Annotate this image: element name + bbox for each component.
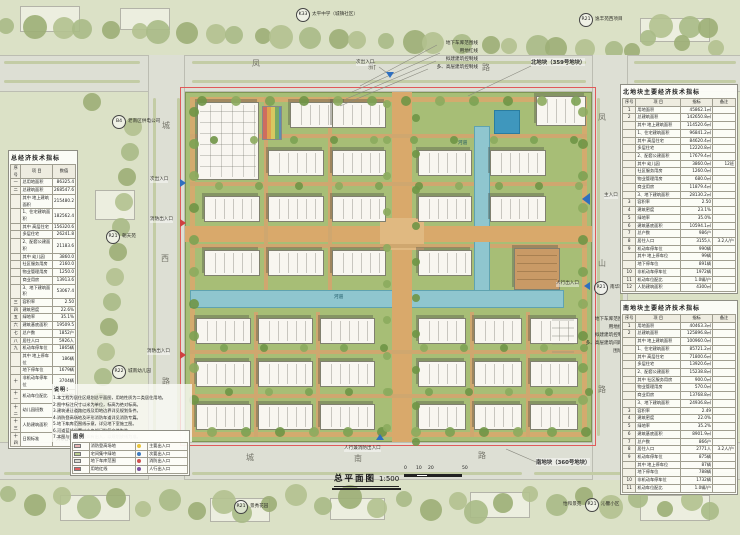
table-cell [713,168,736,176]
table-row: 6建筑基底面积10594.1㎡ [623,222,736,230]
north-table-title: 北地块主要经济技术指标 [623,87,736,96]
table-cell [11,367,21,375]
table-row: 其中 地上建筑面积114520.6㎡ [623,122,736,130]
table-cell [11,276,21,284]
table-cell [623,338,636,346]
residential-building [196,404,251,430]
table-cell [713,284,736,292]
table-cell [713,369,736,377]
table-cell: 多层住宅 [21,231,53,239]
table-header-cell: 项 目 [636,315,681,323]
table-row: 其中 高层住宅71800.6㎡ [623,353,736,361]
boundary-label: 地下车库范围线 [437,40,478,48]
road-name-char: 山 [598,260,606,268]
table-cell [713,430,736,438]
tree-icon [464,500,488,524]
table-cell [713,276,736,284]
table-cell [623,361,636,369]
table-cell: 215480.2 [53,194,76,208]
table-cell: 3860.0 [53,253,76,261]
table-cell: 3 [623,407,636,415]
tree-icon [415,182,423,190]
residential-building [204,196,260,222]
tree-icon [189,107,199,117]
tree-icon [412,258,420,266]
table-cell: 9 [623,453,636,461]
table-cell [713,345,736,353]
residential-building [474,361,522,387]
tree-icon [367,96,377,106]
table-cell: 其中 地上建筑面积 [636,338,681,346]
tree-icon [275,427,285,437]
legend-cell [136,443,148,451]
entrance-arrow-icon [376,434,384,440]
tree-icon [383,136,391,144]
table-cell: 12220.8㎡ [681,145,713,153]
tree-icon [102,21,120,39]
table-cell [11,352,21,366]
residential-building [268,150,324,176]
tree-icon [412,330,420,338]
residential-building [320,318,375,344]
overall-table-title: 总经济技术指标 [11,153,76,162]
table-cell: 人防建筑面积 [636,284,681,292]
table-cell: 建筑基底面积 [21,322,53,330]
table-cell: 142650.8㎡ [681,114,713,122]
residential-building [332,102,386,128]
tree-icon [265,388,273,396]
tree-icon [255,182,263,190]
table-cell: 13913.6 [53,276,76,284]
table-cell [623,253,636,261]
table-cell: 10 [623,477,636,485]
table-cell [623,176,636,184]
table-cell [623,461,636,469]
legend-cell: 消防登高场地 [89,443,136,451]
legend-swatch-icon [74,459,81,463]
tree-icon [189,203,199,213]
tree-icon [522,486,538,502]
legend-cell [136,466,148,474]
tree-icon [215,182,223,190]
table-cell [11,269,21,277]
table-cell: 物业管理用房 [21,269,53,277]
table-row: 1、住宅建筑面积96841.2㎡ [623,129,736,137]
table-cell: 900.0㎡ [681,376,713,384]
table-cell: 六 [11,322,21,330]
table-cell: 28130.2㎡ [681,191,713,199]
table-cell [11,194,21,208]
road-name-char: 城 [162,122,170,130]
table-cell [713,214,736,222]
table-cell: 9 [623,245,636,253]
table-cell: 十二 [11,404,21,418]
residential-building [418,150,472,176]
table-row: 9机动车停车位990辆 [623,245,736,253]
legend-swatch-icon [74,467,81,471]
table-row: 5绿地率35.0% [623,214,736,222]
table-row: 其中 幼儿园3860.0㎡12班 [623,160,736,168]
ref-circle-label: 朝天苑 [122,235,136,240]
table-cell [623,183,636,191]
table-cell: 21183.6 [53,239,76,253]
table-cell [623,191,636,199]
tree-icon [578,363,588,373]
tree-icon [501,38,517,54]
table-row: 其中 高层住宅84620.4㎡ [623,137,736,145]
legend-cell [136,458,148,466]
tree-icon [299,96,309,106]
tree-icon [225,388,233,396]
table-row: 9机动车停车位875辆 [623,453,736,461]
table-cell [713,114,736,122]
community-building [514,248,560,290]
table-cell: 物业管理用房 [636,384,681,392]
boundary-label: 拟建建筑控制线 [437,56,478,64]
entrance-label: 次出入口 [150,178,168,183]
tree-icon [220,344,228,352]
table-cell: 2 [623,330,636,338]
table-cell: 4 [623,207,636,215]
residential-building [490,196,546,222]
table-cell: 1、住宅建筑面积 [21,209,53,223]
north-parcel-indicator-table: 北地块主要经济技术指标 序号项 目指标备注1用地面积45862.1㎡2总建筑面积… [620,84,738,294]
tree-icon [465,388,473,396]
ref-circle: K33 [296,8,310,22]
residential-building [490,150,546,176]
table-row: 1用地面积40463.3㎡ [623,322,736,330]
residential-building [418,404,466,430]
tree-icon [578,267,588,277]
entrance-arrow-icon [386,72,394,78]
table-row: 商业用房11879.4㎡ [623,183,736,191]
tree-icon [495,182,503,190]
table-cell: 其中 地上停车位 [636,253,681,261]
table-cell [713,407,736,415]
table-cell: 九 [11,345,21,353]
table-cell: 绿地率 [636,423,681,431]
tree-icon [578,395,588,405]
table-cell: 156320.6 [53,223,76,231]
tree-icon [189,235,199,245]
tree-icon [383,352,391,360]
canal-horizontal [190,290,564,308]
table-cell [713,399,736,407]
tree-icon [420,499,442,521]
tree-icon [490,136,498,144]
legend-dot-icon [137,452,141,456]
entrance-label: 消防出入口 [147,350,170,355]
table-cell [623,261,636,269]
table-header-cell: 序号 [623,315,636,323]
table-cell: 商业用房 [636,392,681,400]
table-cell: 用地面积 [636,322,681,330]
tree-icon [340,344,348,352]
table-cell [713,322,736,330]
tree-icon [530,136,538,144]
residential-building [474,404,522,430]
table-cell: 11879.4㎡ [681,183,713,191]
table-cell: 2、配套公建面积 [21,239,53,253]
table-row: 四建筑密度22.6% [11,306,76,314]
residential-building [268,250,324,276]
tree-icon [159,489,181,511]
table-cell: 22.6% [53,306,76,314]
tree-icon [118,168,136,186]
drawing-title-block: 总平面图1:500 [332,466,401,490]
table-header-cell: 备注 [713,315,736,323]
tree-icon [540,344,548,352]
residential-building [268,196,324,222]
ref-circle-label: 太平中学（城镇社区） [312,13,358,18]
tree-icon [206,24,226,44]
tree-icon [500,344,508,352]
road-name-char: 路 [598,386,606,394]
table-cell: 680.0㎡ [681,176,713,184]
table-cell: 7 [623,230,636,238]
table-row: 11机动车位配比1.0辆/户 [623,484,736,492]
legend-cell: 次要出入口 [148,450,188,458]
tree-icon [269,25,293,49]
road-name-char: 凤 [252,60,260,68]
table-cell: 1 [623,106,636,114]
residential-building [530,404,578,430]
tree-icon [578,139,588,149]
legend-cell [73,466,90,474]
tree-icon [383,316,391,324]
table-header-cell: 指标 [681,99,713,107]
table-cell: 268547.6 [53,187,76,195]
tree-icon [97,343,115,361]
tree-icon [640,30,656,46]
table-cell: 3155人 [681,237,713,245]
table-row: 八居住人口5926人 [11,337,76,345]
legend-swatch-icon [74,452,81,456]
residential-building [204,250,260,276]
table-cell: 17679.4㎡ [681,153,713,161]
legend-cell: 用地红线 [89,466,136,474]
entrance-arrow-icon [584,282,590,290]
table-cell: 11 [623,276,636,284]
ref-circle: R21 [234,500,248,514]
tree-icon [121,143,139,161]
boundary-label: 用地红线 [437,48,478,56]
table-cell: 其中 社区服务用房 [636,376,681,384]
table-cell: 3.2人/户 [713,237,736,245]
road-median-strip [4,80,140,83]
entrance-label: 人行兼消防出入口 [344,447,381,452]
tree-icon [503,96,513,106]
road-name-char: 西 [161,255,169,263]
tree-icon [109,243,127,261]
table-cell: 总建筑面积 [21,187,53,195]
table-cell: 总户数 [21,329,53,337]
table-cell: 4300㎡ [681,284,713,292]
table-row: 其中 地上停车位87辆 [623,461,736,469]
table-cell: 15238.8㎡ [681,369,713,377]
table-cell: 3、地下建筑面积 [21,284,53,298]
south-parcel-indicator-table: 南地块主要经济技术指标 序号项 目指标备注1用地面积40463.3㎡2总建筑面积… [620,300,738,495]
table-row: 10非机动车停车位1972辆 [623,268,736,276]
table-cell [623,353,636,361]
table-cell: 商业用房 [636,183,681,191]
residential-building [320,361,375,387]
tree-icon [493,493,513,513]
tree-icon [260,344,268,352]
table-cell: 建筑基底面积 [636,430,681,438]
tree-icon [348,31,366,49]
table-cell [713,330,736,338]
tree-icon [412,366,420,374]
site-path-horizontal [190,182,587,186]
table-cell: 1250.0 [53,269,76,277]
tree-icon [285,484,307,506]
tree-icon [314,497,332,515]
table-row: 2总建筑面积142650.8㎡ [623,114,736,122]
legend-cell [73,450,90,458]
table-cell: 其中 幼儿园 [636,160,681,168]
table-cell: 1852户 [53,329,76,337]
table-row: 3容积率2.50 [623,199,736,207]
table-cell: 机动车位配比 [636,276,681,284]
tree-icon [188,502,206,520]
table-row: 物业管理用房570.0㎡ [623,384,736,392]
table-cell: 186辆 [53,352,76,366]
table-cell: 建筑密度 [21,306,53,314]
table-cell: 绿地率 [21,314,53,322]
table-cell: 85721.2㎡ [681,345,713,353]
tree-icon [207,427,217,437]
table-cell: 其中 地上停车位 [636,461,681,469]
residential-building [258,318,313,344]
table-cell: 182562.4 [53,209,76,223]
legend-cell: 人行出入口 [148,466,188,474]
table-cell: 其中 地上停车位 [21,352,53,366]
table-cell: 机动车位配比 [636,484,681,492]
table-cell: 五 [11,314,21,322]
table-cell: 人防建筑面积 [21,418,53,432]
table-cell: 机动车停车位 [636,245,681,253]
table-cell [11,239,21,253]
table-cell [713,230,736,238]
legend-cell [136,450,148,458]
table-cell: 十四 [11,432,21,446]
tree-icon [701,502,719,520]
tree-icon [460,344,468,352]
entrance-arrow-icon [582,193,590,205]
tree-icon [250,136,258,144]
table-cell: 社区服务用房 [21,261,53,269]
tree-icon [396,491,412,507]
tree-icon [24,494,46,516]
table-cell: 非机动车停车位 [636,477,681,485]
legend-cell [73,458,90,466]
table-cell: 5 [623,423,636,431]
canal-label: 河道 [458,140,467,146]
table-cell: 1.0辆/户 [681,484,713,492]
table-cell: 1.0辆/户 [681,276,713,284]
table-cell [623,376,636,384]
residential-building [418,196,472,222]
residential-building [418,318,466,344]
entrance-label: 消防出入口 [150,218,173,223]
central-axis-vertical [392,92,412,442]
tree-icon [578,107,588,117]
table-row: 物业管理用房680.0㎡ [623,176,736,184]
entrance-label: 次出入口 [356,61,374,66]
table-cell: 1、住宅建筑面积 [636,345,681,353]
tree-icon [513,427,523,437]
tree-icon [197,96,207,106]
table-cell [713,484,736,492]
scale-tick-label: 0 [404,466,407,471]
table-cell: 机动车停车位 [636,453,681,461]
scale-tick-label: 20 [428,466,434,471]
tree-icon [412,150,420,158]
table-cell: 6 [623,222,636,230]
table-cell: 87辆 [681,461,713,469]
parcel-tag: 南地块（360号地块） [536,458,590,466]
table-cell: 22.0% [681,415,713,423]
table-row: 其中 幼儿园3860.0 [11,253,76,261]
table-row: 一总用地面积86325.4 [11,179,76,187]
table-cell [713,176,736,184]
table-cell: 8 [623,446,636,454]
tree-icon [445,427,455,437]
table-cell [623,145,636,153]
table-cell: 23.1% [681,207,713,215]
tree-icon [412,402,420,410]
tree-icon [585,388,593,396]
table-header-cell: 备注 [713,99,736,107]
table-cell [713,129,736,137]
tree-icon [265,96,275,106]
table-cell [713,338,736,346]
table-cell: 2.50 [53,298,76,306]
tree-icon [401,96,411,106]
table-cell: 十 [11,375,21,389]
table-cell: 2、配套公建面积 [636,153,681,161]
table-cell [623,153,636,161]
table-cell: 幼儿园班数 [21,404,53,418]
table-cell: 10 [623,268,636,276]
tree-icon [370,136,378,144]
table-cell [11,261,21,269]
table-row: 其中 高层住宅156320.6 [11,223,76,231]
table-cell [623,345,636,353]
table-cell: 875辆 [681,453,713,461]
scale-bar-segment [404,474,416,477]
ref-circle: B4 [112,115,126,129]
ref-circle-label: 怡和景苑 [563,503,581,508]
residential-building [258,361,313,387]
table-cell: 3、地下建筑面积 [636,399,681,407]
table-cell: 容积率 [21,298,53,306]
table-cell [623,392,636,400]
tree-icon [330,136,338,144]
table-cell: 40463.3㎡ [681,322,713,330]
table-cell: 机动车停车位 [21,345,53,353]
tree-icon [469,96,479,106]
table-cell: 七 [11,329,21,337]
legend-cell: 消防出入口 [148,458,188,466]
table-cell: 总建筑面积 [636,330,681,338]
table-cell: 12班 [713,160,736,168]
table-row: 社区服务用房2160.0 [11,261,76,269]
tree-icon [241,427,251,437]
ref-circle-label: 老南区供电公司 [128,120,160,125]
table-cell: 总用地面积 [21,179,53,187]
